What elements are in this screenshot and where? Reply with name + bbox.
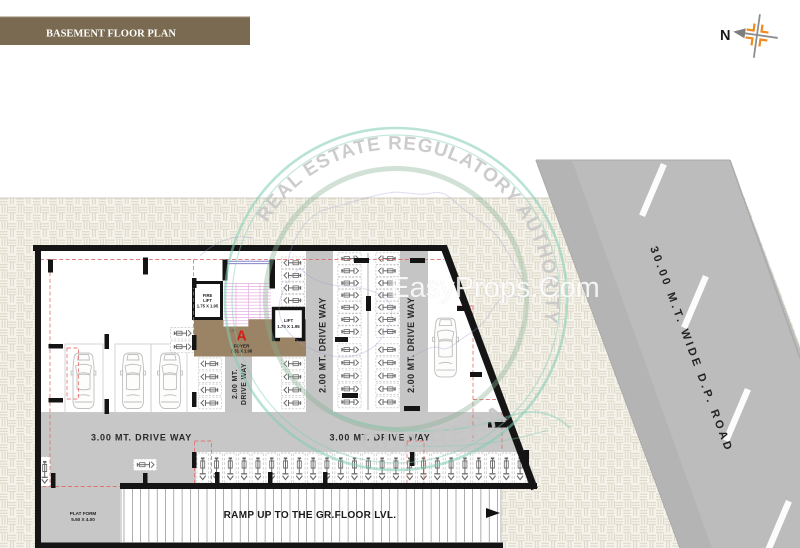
svg-text:2.00 MT. DRIVE WAY: 2.00 MT. DRIVE WAY xyxy=(406,297,416,393)
svg-text:3.00 MT. DRIVE WAY: 3.00 MT. DRIVE WAY xyxy=(91,433,192,443)
svg-text:1.75 X 1.95: 1.75 X 1.95 xyxy=(277,324,300,329)
svg-text:BASEMENT FLOOR PLAN: BASEMENT FLOOR PLAN xyxy=(46,29,176,40)
svg-text:PLAT FORM: PLAT FORM xyxy=(70,511,97,516)
svg-text:1.75 X 1.95: 1.75 X 1.95 xyxy=(197,304,219,309)
svg-text:RAMP UP TO THE GR.FLOOR LVL.: RAMP UP TO THE GR.FLOOR LVL. xyxy=(224,510,397,521)
svg-text:2.00 MT. DRIVE WAY: 2.00 MT. DRIVE WAY xyxy=(318,297,328,393)
svg-text:LIFT: LIFT xyxy=(203,298,212,303)
svg-text:LIFT: LIFT xyxy=(284,318,294,323)
svg-text:N: N xyxy=(720,28,730,44)
svg-text:EasyProps.Com: EasyProps.Com xyxy=(390,272,600,304)
svg-text:5.50 X 4.00: 5.50 X 4.00 xyxy=(71,517,95,522)
